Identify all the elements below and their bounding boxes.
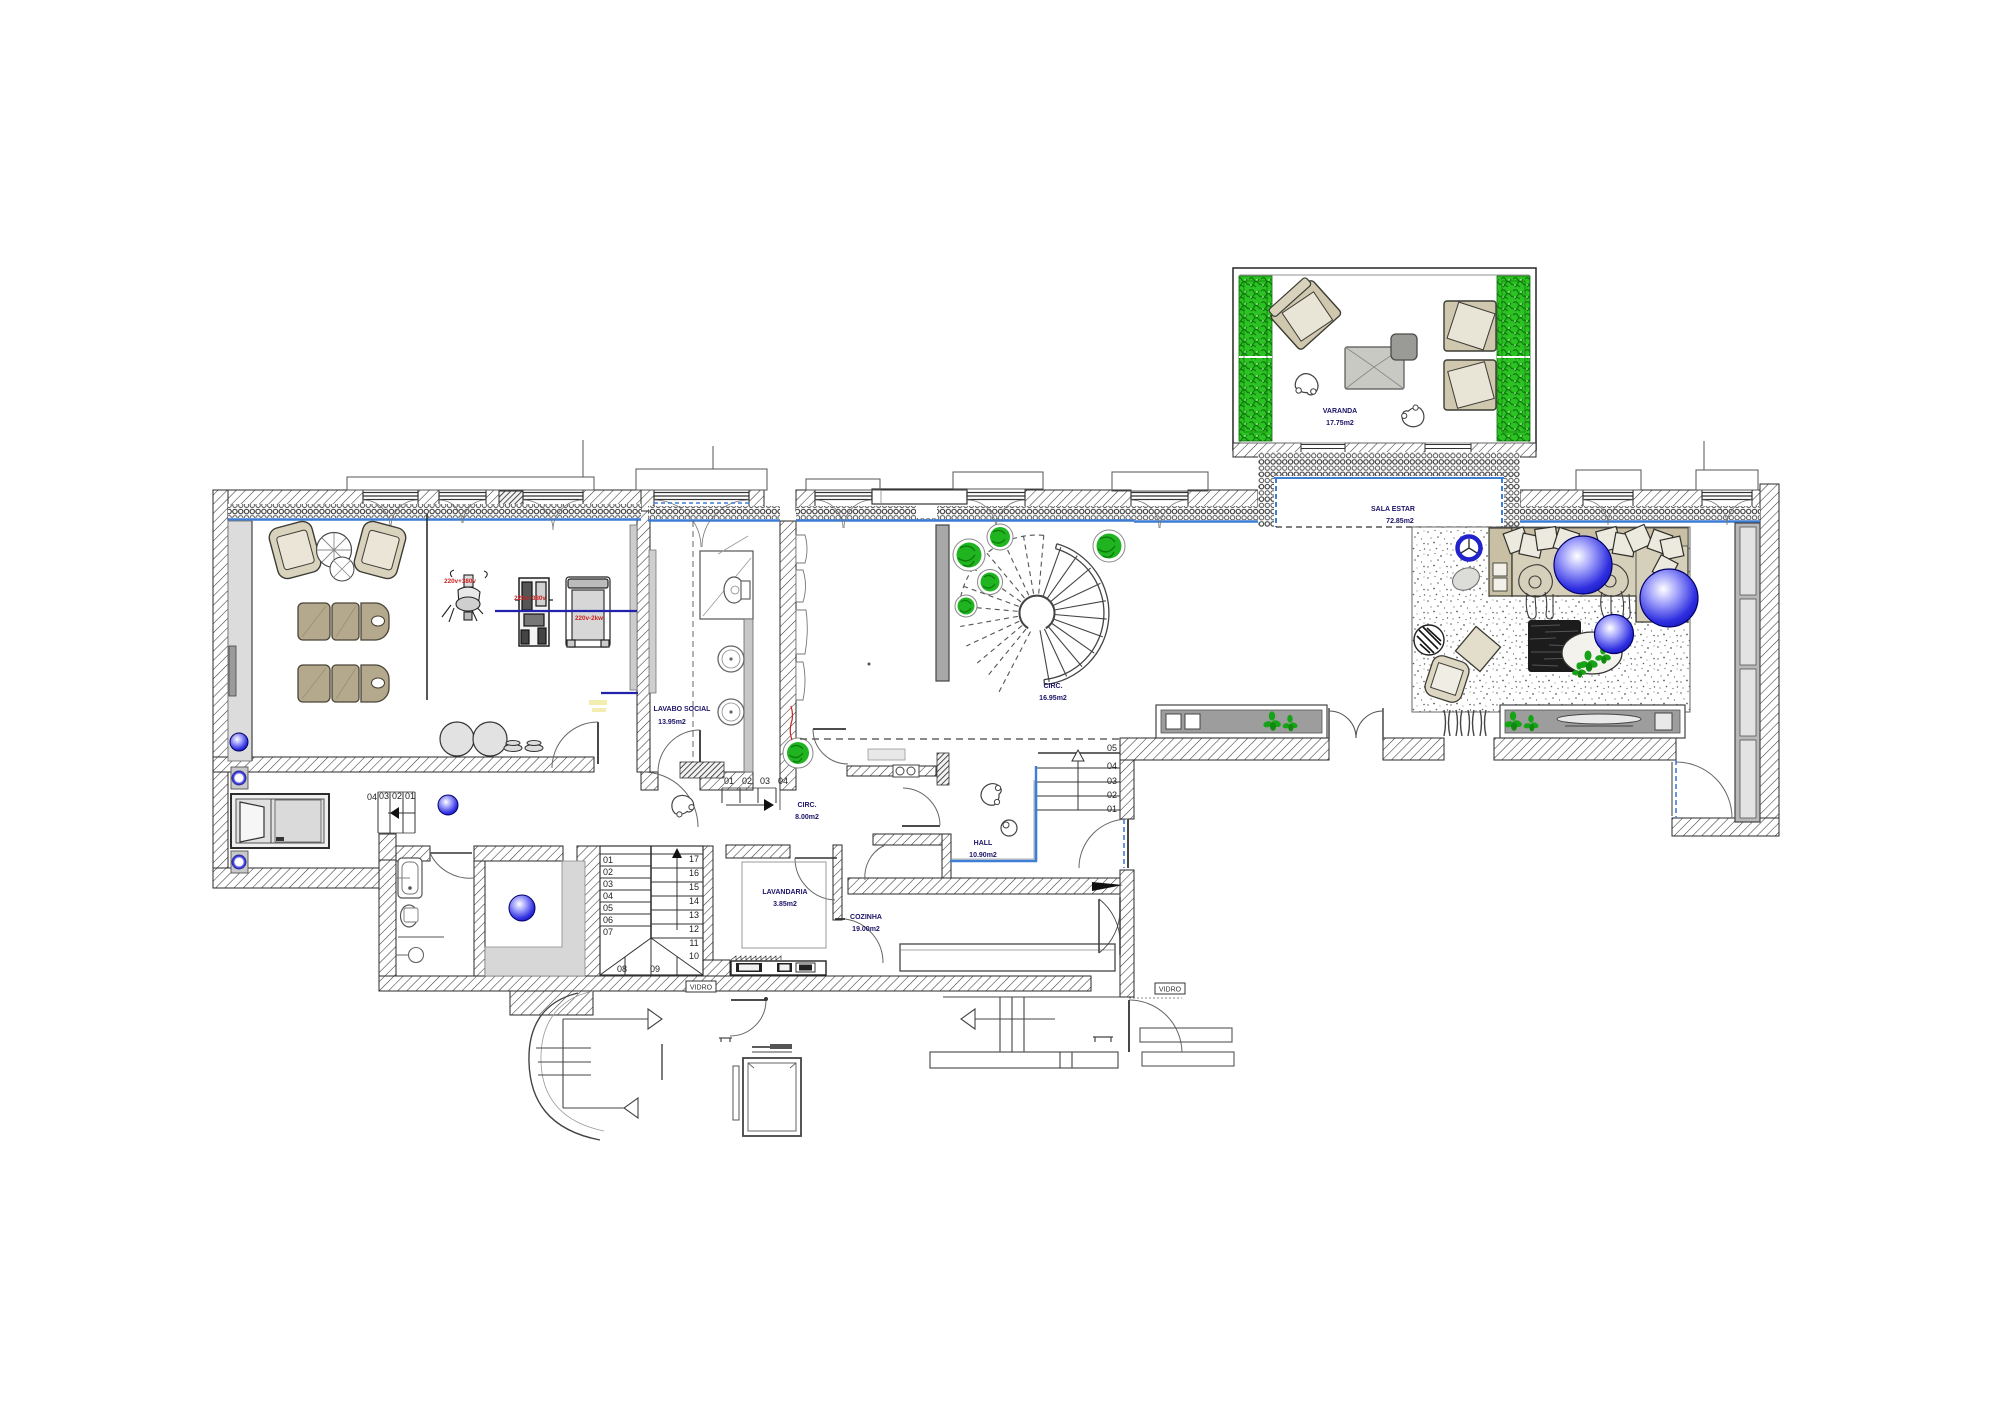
svg-text:16.95m2: 16.95m2: [1039, 695, 1067, 702]
svg-text:LAVANDARIA: LAVANDARIA: [762, 889, 807, 896]
svg-text:05: 05: [1107, 743, 1117, 753]
svg-text:13: 13: [689, 910, 699, 920]
svg-text:01: 01: [1107, 804, 1117, 814]
svg-text:04: 04: [367, 792, 377, 802]
svg-text:220v+380v: 220v+380v: [444, 578, 476, 585]
svg-text:HALL: HALL: [974, 840, 993, 847]
svg-text:14: 14: [689, 896, 699, 906]
svg-text:05: 05: [603, 903, 613, 913]
svg-text:17: 17: [689, 854, 699, 864]
svg-text:220v-2kw: 220v-2kw: [575, 615, 603, 622]
svg-text:08: 08: [617, 964, 627, 974]
svg-text:3.85m2: 3.85m2: [773, 901, 797, 908]
svg-text:04: 04: [778, 776, 788, 786]
svg-text:01: 01: [603, 855, 613, 865]
svg-text:01: 01: [405, 791, 415, 801]
svg-text:11: 11: [689, 938, 698, 948]
svg-text:03: 03: [1107, 776, 1117, 786]
svg-text:220v+380v: 220v+380v: [514, 595, 546, 602]
svg-text:09: 09: [650, 964, 660, 974]
svg-text:CIRC.: CIRC.: [1043, 683, 1062, 690]
svg-text:03: 03: [760, 776, 770, 786]
svg-text:VIDRO: VIDRO: [690, 985, 713, 992]
svg-text:07: 07: [603, 927, 613, 937]
svg-text:01: 01: [724, 776, 734, 786]
svg-text:19.00m2: 19.00m2: [852, 926, 880, 933]
svg-text:10.90m2: 10.90m2: [969, 852, 997, 859]
svg-text:02: 02: [392, 791, 402, 801]
svg-text:CIRC.: CIRC.: [797, 802, 816, 809]
svg-text:06: 06: [603, 915, 613, 925]
svg-text:13.95m2: 13.95m2: [658, 719, 686, 726]
svg-text:SALA ESTAR: SALA ESTAR: [1371, 506, 1415, 513]
svg-text:02: 02: [603, 867, 613, 877]
svg-text:VARANDA: VARANDA: [1323, 408, 1357, 415]
svg-text:LAVABO SOCIAL: LAVABO SOCIAL: [654, 706, 712, 713]
svg-text:12: 12: [689, 924, 699, 934]
svg-text:03: 03: [603, 879, 613, 889]
svg-text:03: 03: [379, 791, 389, 801]
svg-text:16: 16: [689, 868, 699, 878]
svg-text:04: 04: [1107, 761, 1117, 771]
svg-text:04: 04: [603, 891, 613, 901]
svg-text:COZINHA: COZINHA: [850, 914, 882, 921]
svg-text:72.85m2: 72.85m2: [1386, 518, 1414, 525]
svg-text:10: 10: [689, 951, 699, 961]
svg-text:VIDRO: VIDRO: [1159, 987, 1182, 994]
svg-text:02: 02: [1107, 790, 1117, 800]
svg-text:15: 15: [689, 882, 699, 892]
svg-text:8.00m2: 8.00m2: [795, 814, 819, 821]
svg-text:17.75m2: 17.75m2: [1326, 420, 1354, 427]
svg-text:02: 02: [742, 776, 752, 786]
